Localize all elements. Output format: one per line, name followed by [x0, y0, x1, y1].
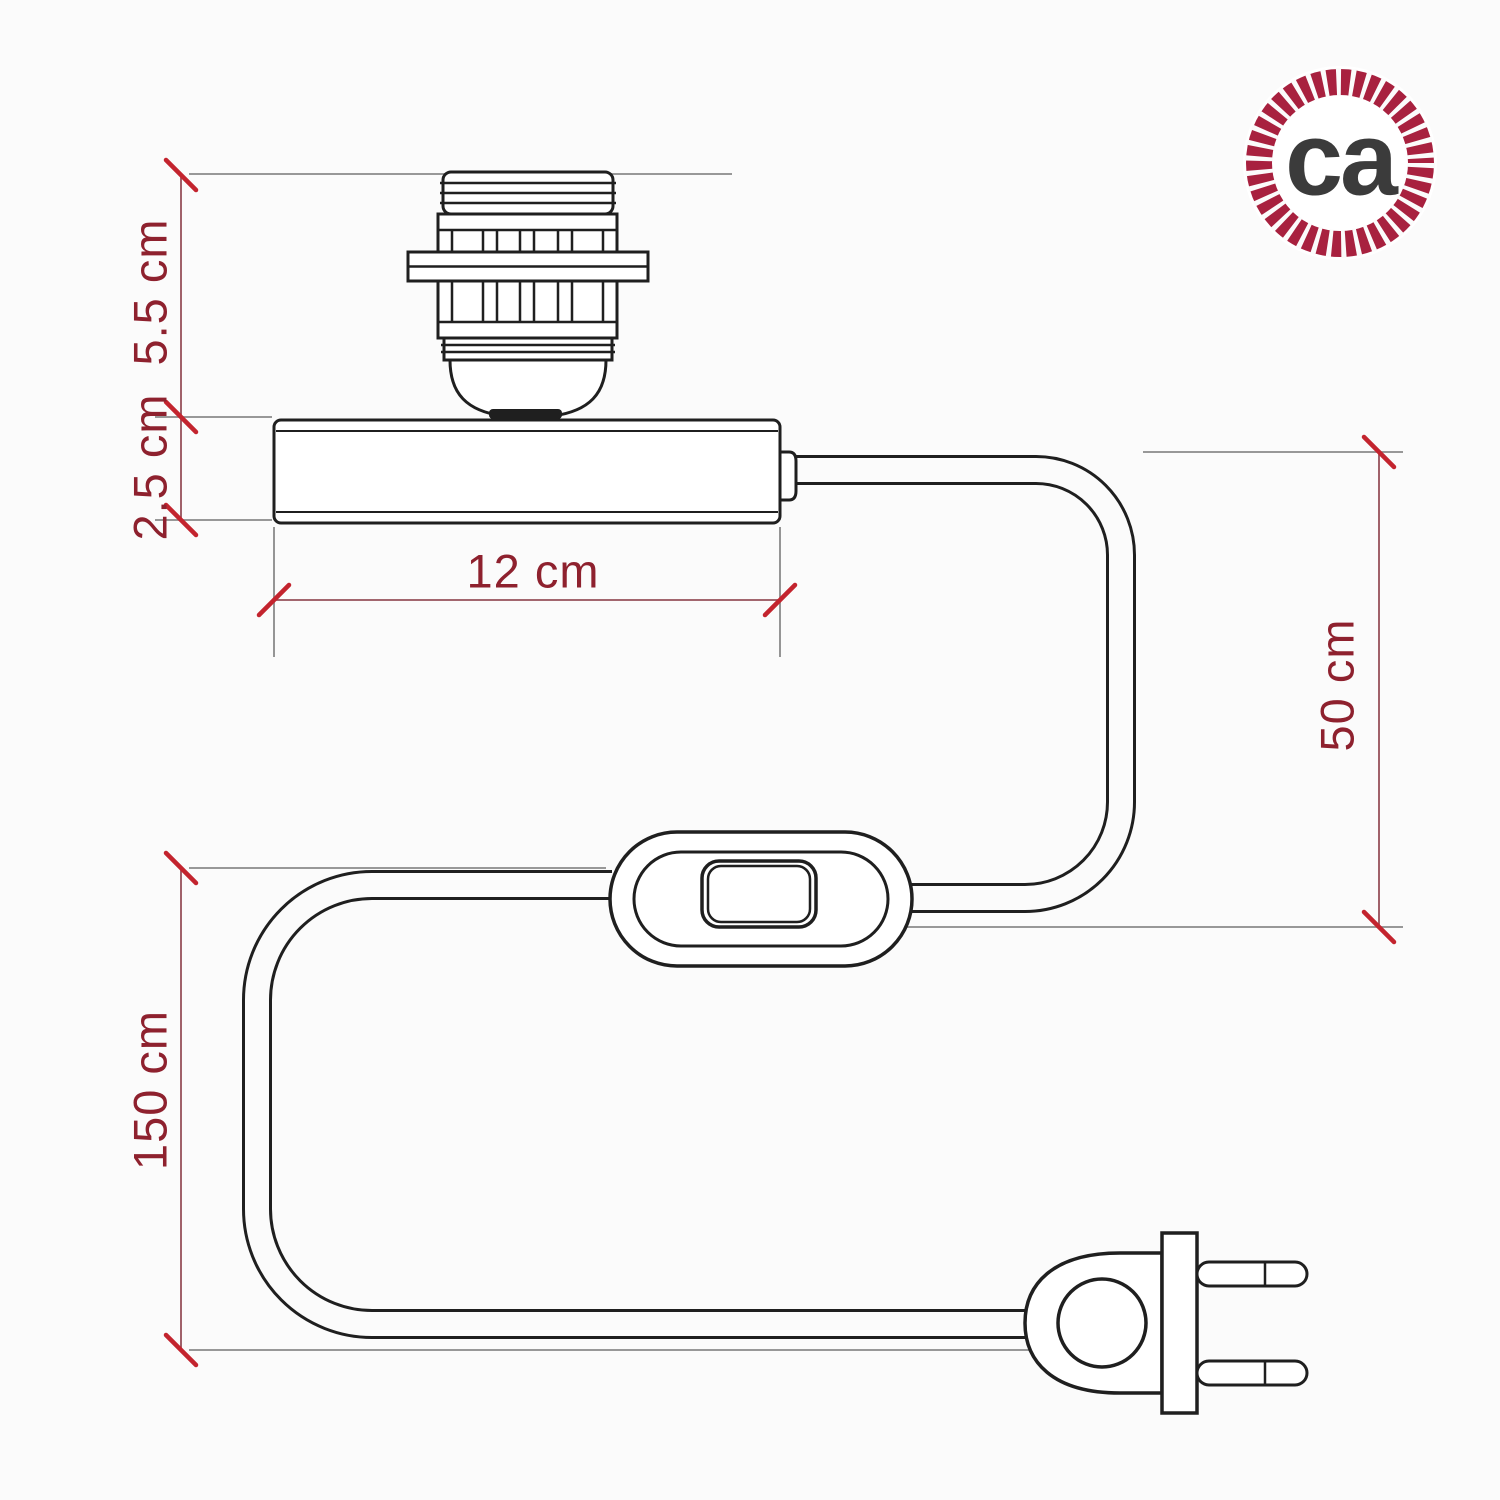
lamp-base [274, 420, 796, 523]
power-plug [1025, 1233, 1307, 1413]
plug-pin-top [1197, 1262, 1307, 1286]
inline-switch [610, 832, 912, 966]
dimension-ticks [166, 160, 1394, 1365]
extension-lines [155, 174, 1403, 1350]
dimension-lines [181, 175, 1379, 1350]
dimension-label-base-height: 2.5 cm [123, 393, 178, 540]
switch-rocker [702, 861, 816, 927]
dimension-label-lower-cable: 150 cm [123, 1010, 178, 1170]
holder-lower-thread [444, 338, 612, 360]
plug-body-circle [1058, 1279, 1146, 1367]
base-cylinder [274, 420, 780, 523]
holder-dome-cup [450, 360, 606, 416]
lamp-dimension-diagram [0, 0, 1500, 1500]
logo-monogram: ca [1285, 101, 1395, 220]
dimension-label-socket-height: 5.5 cm [123, 218, 178, 365]
plug-pin-bottom [1197, 1361, 1307, 1385]
cable-gland [780, 452, 796, 500]
plug-flange [1162, 1233, 1197, 1413]
technical-drawing-canvas: 5.5 cm 2.5 cm 12 cm 50 cm 150 cm ca [0, 0, 1500, 1500]
dimension-label-upper-cable: 50 cm [1310, 619, 1365, 752]
holder-nipple [489, 409, 562, 419]
dimension-label-base-width: 12 cm [467, 544, 600, 599]
lamp-holder [408, 172, 648, 419]
